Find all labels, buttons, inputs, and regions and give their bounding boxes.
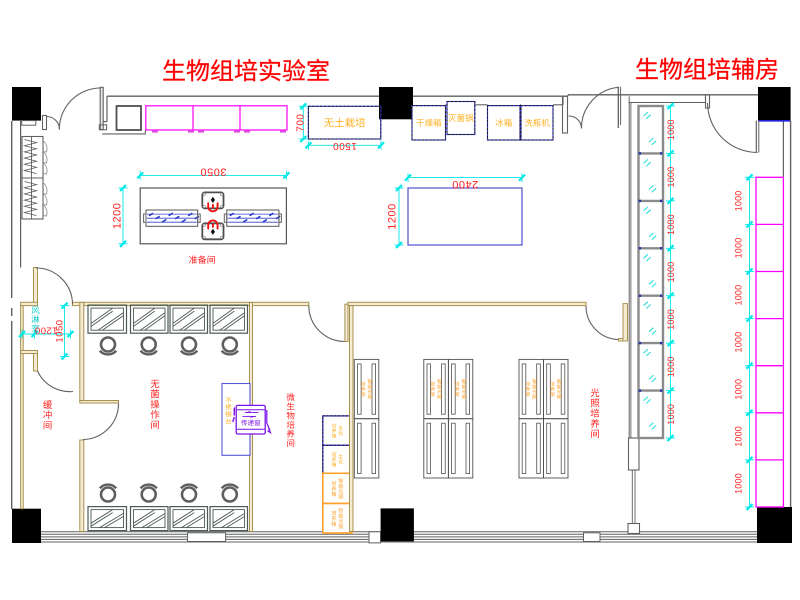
svg-text:3050: 3050 bbox=[200, 165, 226, 177]
svg-text:2400: 2400 bbox=[452, 178, 478, 190]
svg-text:1000: 1000 bbox=[666, 309, 676, 330]
svg-text:1000: 1000 bbox=[666, 214, 676, 235]
svg-text:1000: 1000 bbox=[734, 285, 744, 306]
svg-text:1000: 1000 bbox=[734, 190, 744, 211]
svg-text:1000: 1000 bbox=[666, 167, 676, 188]
svg-text:1050: 1050 bbox=[54, 319, 65, 342]
svg-text:1000: 1000 bbox=[666, 262, 676, 283]
svg-text:1000: 1000 bbox=[734, 332, 744, 353]
svg-text:1000: 1000 bbox=[734, 238, 744, 259]
svg-text:1000: 1000 bbox=[734, 379, 744, 400]
svg-text:1200: 1200 bbox=[386, 203, 398, 229]
svg-text:1500: 1500 bbox=[333, 140, 357, 151]
svg-text:1000: 1000 bbox=[666, 356, 676, 377]
svg-text:1000: 1000 bbox=[666, 119, 676, 140]
svg-text:700: 700 bbox=[295, 114, 306, 132]
svg-text:1200: 1200 bbox=[111, 203, 123, 229]
svg-text:1000: 1000 bbox=[734, 473, 744, 494]
svg-text:1000: 1000 bbox=[734, 426, 744, 447]
svg-text:1000: 1000 bbox=[666, 404, 676, 425]
